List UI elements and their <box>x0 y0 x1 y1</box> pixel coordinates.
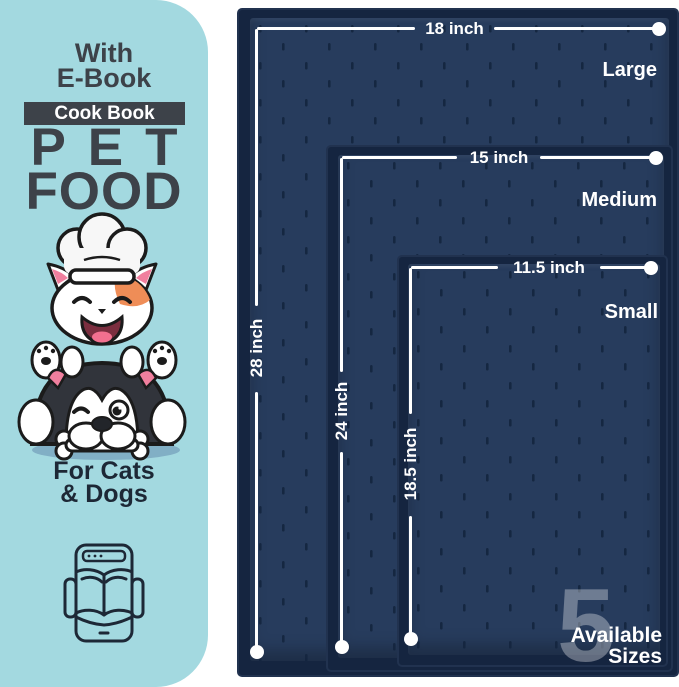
available-sizes-label: Available Sizes <box>571 625 662 667</box>
large-height-endpoint-dot <box>250 645 264 659</box>
dog-nose <box>92 417 112 431</box>
cat-tongue <box>92 332 112 343</box>
small-width-label: 11.5 inch <box>496 258 602 278</box>
large-height-line-top <box>255 29 258 306</box>
chef-hat <box>58 214 146 283</box>
ebook-icon <box>62 543 146 643</box>
cat-and-dog-illustration <box>14 212 194 462</box>
medium-size-name: Medium <box>581 189 657 212</box>
small-width-line-left <box>411 266 498 269</box>
pet-food-title-line2: FOOD <box>0 170 208 214</box>
dog-eye-glint <box>118 406 121 409</box>
large-width-label: 18 inch <box>407 19 502 39</box>
large-height-label: 28 inch <box>247 319 267 378</box>
small-height-endpoint-dot <box>404 632 418 646</box>
medium-width-line-left <box>342 156 457 159</box>
large-size-name: Large <box>603 59 657 82</box>
with-ebook-text: With E-Book <box>0 41 208 91</box>
medium-height-line-bottom <box>340 452 343 642</box>
product-size-infographic: With E-Book Cook Book PET FOOD <box>0 0 679 687</box>
large-height-line-bottom <box>255 392 258 647</box>
medium-height-label: 24 inch <box>332 382 352 441</box>
large-width-endpoint-dot <box>652 22 666 36</box>
medium-height-endpoint-dot <box>335 640 349 654</box>
small-height-label: 18.5 inch <box>401 428 421 501</box>
for-cats-and-dogs-text: For Cats & Dogs <box>0 460 208 506</box>
large-width-line-left <box>257 27 415 30</box>
small-width-line-right <box>600 266 646 269</box>
medium-width-endpoint-dot <box>649 151 663 165</box>
small-size-name: Small <box>605 301 658 324</box>
small-height-line-bottom <box>409 516 412 634</box>
small-width-endpoint-dot <box>644 261 658 275</box>
sidebar-panel: With E-Book Cook Book PET FOOD <box>0 0 208 687</box>
large-width-line-right <box>494 27 654 30</box>
pet-food-title: PET FOOD <box>0 126 208 214</box>
medium-width-label: 15 inch <box>455 148 543 168</box>
small-height-line-top <box>409 268 412 414</box>
medium-height-line-top <box>340 158 343 372</box>
medium-width-line-right <box>540 156 650 159</box>
